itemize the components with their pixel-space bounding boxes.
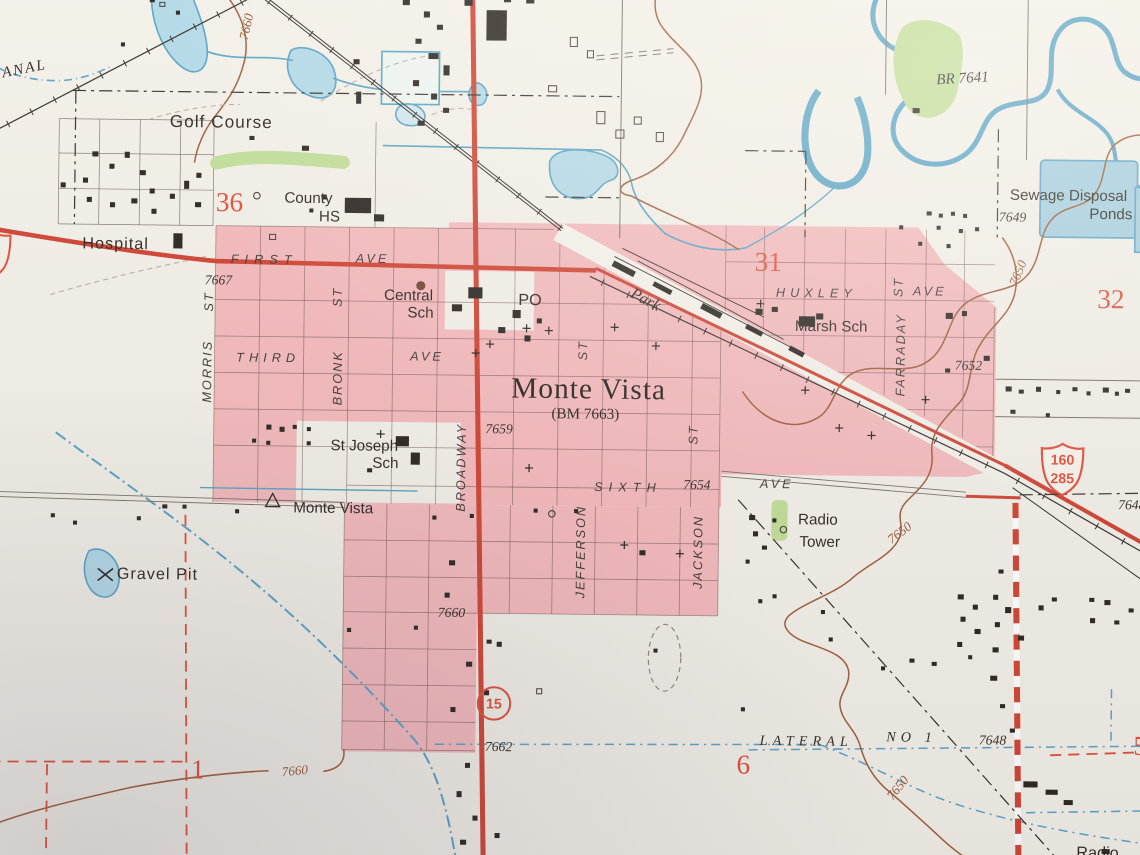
map-sheet: ANAL7660Golf Course36CountyHSHospitalFIR… <box>0 0 1140 855</box>
map-graphics <box>0 0 1140 855</box>
topo-map-photo: ANAL7660Golf Course36CountyHSHospitalFIR… <box>0 0 1140 855</box>
